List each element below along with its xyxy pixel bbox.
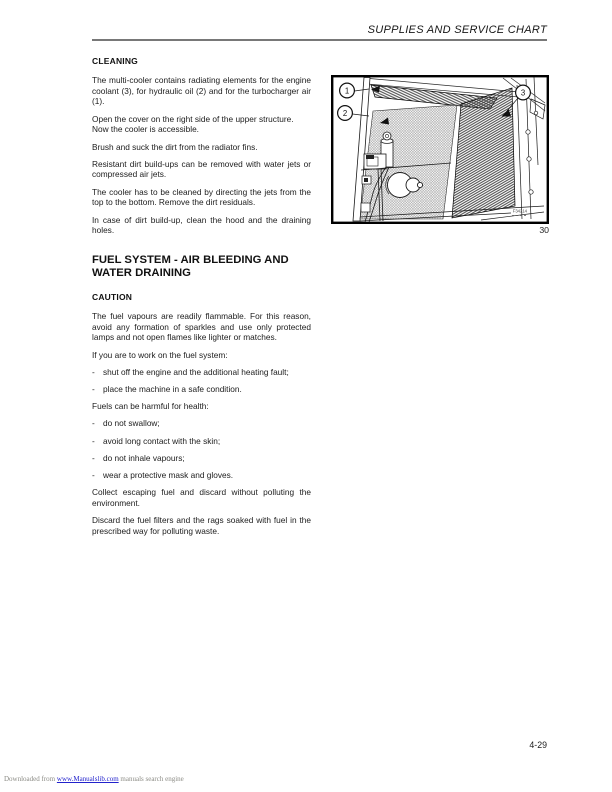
paragraph-fuel-1: The fuel vapours are readily flammable. … xyxy=(92,311,311,343)
bullet-text: avoid long contact with the skin; xyxy=(103,436,311,447)
callout-2: 2 xyxy=(343,109,347,118)
header-rule xyxy=(92,39,547,41)
paragraph-fuel-5: Discard the fuel filters and the rags so… xyxy=(92,515,311,536)
callout-1: 1 xyxy=(345,86,349,95)
bullet-text: do not swallow; xyxy=(103,418,311,429)
section-heading-fuel-system: FUEL SYSTEM - AIR BLEEDING AND WATER DRA… xyxy=(92,254,311,281)
figure-caption: 30 xyxy=(331,225,549,235)
watermark-prefix: Downloaded from xyxy=(4,775,55,783)
list-item: - place the machine in a safe condition. xyxy=(92,384,311,395)
bullet-dash: - xyxy=(92,384,103,395)
watermark-suffix: manuals search engine xyxy=(120,775,183,783)
paragraph-cleaning-3: Brush and suck the dirt from the radiato… xyxy=(92,142,311,153)
list-item: - shut off the engine and the additional… xyxy=(92,367,311,378)
paragraph-cleaning-5: The cooler has to be cleaned by directin… xyxy=(92,187,311,208)
cooler-figure: 1 2 3 F34214 30 xyxy=(331,75,549,235)
bullet-dash: - xyxy=(92,470,103,481)
bullet-dash: - xyxy=(92,367,103,378)
engine-coolant-radiator xyxy=(452,88,515,218)
subheading-caution: CAUTION xyxy=(92,292,311,302)
section-heading-cleaning: CLEANING xyxy=(92,56,311,66)
cooler-illustration: 1 2 3 F34214 xyxy=(331,75,549,224)
paragraph-cleaning-1: The multi-cooler contains radiating elem… xyxy=(92,75,311,107)
paragraph-cleaning-2b: Now the cooler is accessible. xyxy=(92,124,311,135)
watermark: Downloaded from www.Manualslib.com manua… xyxy=(4,775,184,783)
list-item: - wear a protective mask and gloves. xyxy=(92,470,311,481)
running-header: SUPPLIES AND SERVICE CHART xyxy=(92,24,547,36)
page-number: 4-29 xyxy=(92,740,547,750)
callout-3: 3 xyxy=(521,88,525,97)
bullet-text: wear a protective mask and gloves. xyxy=(103,470,311,481)
paragraph-fuel-3: Fuels can be harmful for health: xyxy=(92,401,311,412)
paragraph-fuel-4: Collect escaping fuel and discard withou… xyxy=(92,487,311,508)
bullet-text: do not inhale vapours; xyxy=(103,453,311,464)
list-item: - do not inhale vapours; xyxy=(92,453,311,464)
figure-image-code: F34214 xyxy=(513,209,528,214)
paragraph-fuel-2: If you are to work on the fuel system: xyxy=(92,350,311,361)
list-item: - avoid long contact with the skin; xyxy=(92,436,311,447)
bullet-dash: - xyxy=(92,453,103,464)
manualslib-link[interactable]: www.Manualslib.com xyxy=(57,775,119,783)
paragraph-cleaning-6: In case of dirt build-up, clean the hood… xyxy=(92,215,311,236)
paragraph-cleaning-2: Open the cover on the right side of the … xyxy=(92,114,311,125)
bullet-text: shut off the engine and the additional h… xyxy=(103,367,311,378)
list-item: - do not swallow; xyxy=(92,418,311,429)
bullet-dash: - xyxy=(92,418,103,429)
bullet-text: place the machine in a safe condition. xyxy=(103,384,311,395)
bullet-dash: - xyxy=(92,436,103,447)
text-column: CLEANING The multi-cooler contains radia… xyxy=(92,56,311,543)
paragraph-cleaning-4: Resistant dirt build-ups can be removed … xyxy=(92,159,311,180)
running-header-title: SUPPLIES AND SERVICE CHART xyxy=(368,24,547,36)
